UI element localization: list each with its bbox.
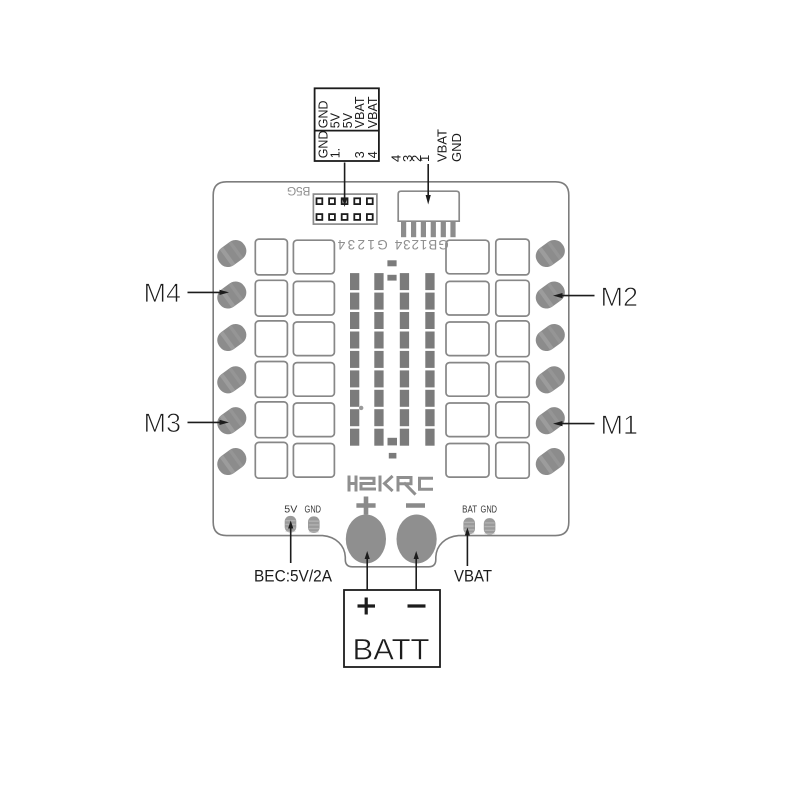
svg-text:5V: 5V [284, 505, 297, 516]
svg-text:M4: M4 [144, 278, 182, 308]
svg-text:BAT: BAT [462, 505, 477, 516]
svg-text:BEC:5V/2A: BEC:5V/2A [254, 567, 333, 586]
svg-text:M2: M2 [601, 282, 639, 312]
svg-text:G1234: G1234 [337, 237, 387, 252]
svg-text:4: 4 [366, 151, 380, 158]
svg-text:M3: M3 [144, 408, 182, 438]
svg-text:VBAT: VBAT [454, 567, 492, 586]
svg-text:GB1234: GB1234 [394, 237, 448, 252]
svg-text:1: 1 [417, 155, 432, 162]
svg-text:GND: GND [481, 505, 498, 516]
svg-text:VBAT: VBAT [366, 96, 380, 128]
svg-text:BATT: BATT [353, 634, 430, 667]
svg-text:GND: GND [449, 133, 464, 162]
svg-text:1.: 1. [329, 148, 343, 158]
svg-text:VBAT: VBAT [435, 129, 450, 162]
svg-text:M1: M1 [601, 410, 639, 440]
svg-text:GND: GND [305, 505, 322, 516]
svg-text:B5G: B5G [287, 184, 311, 198]
